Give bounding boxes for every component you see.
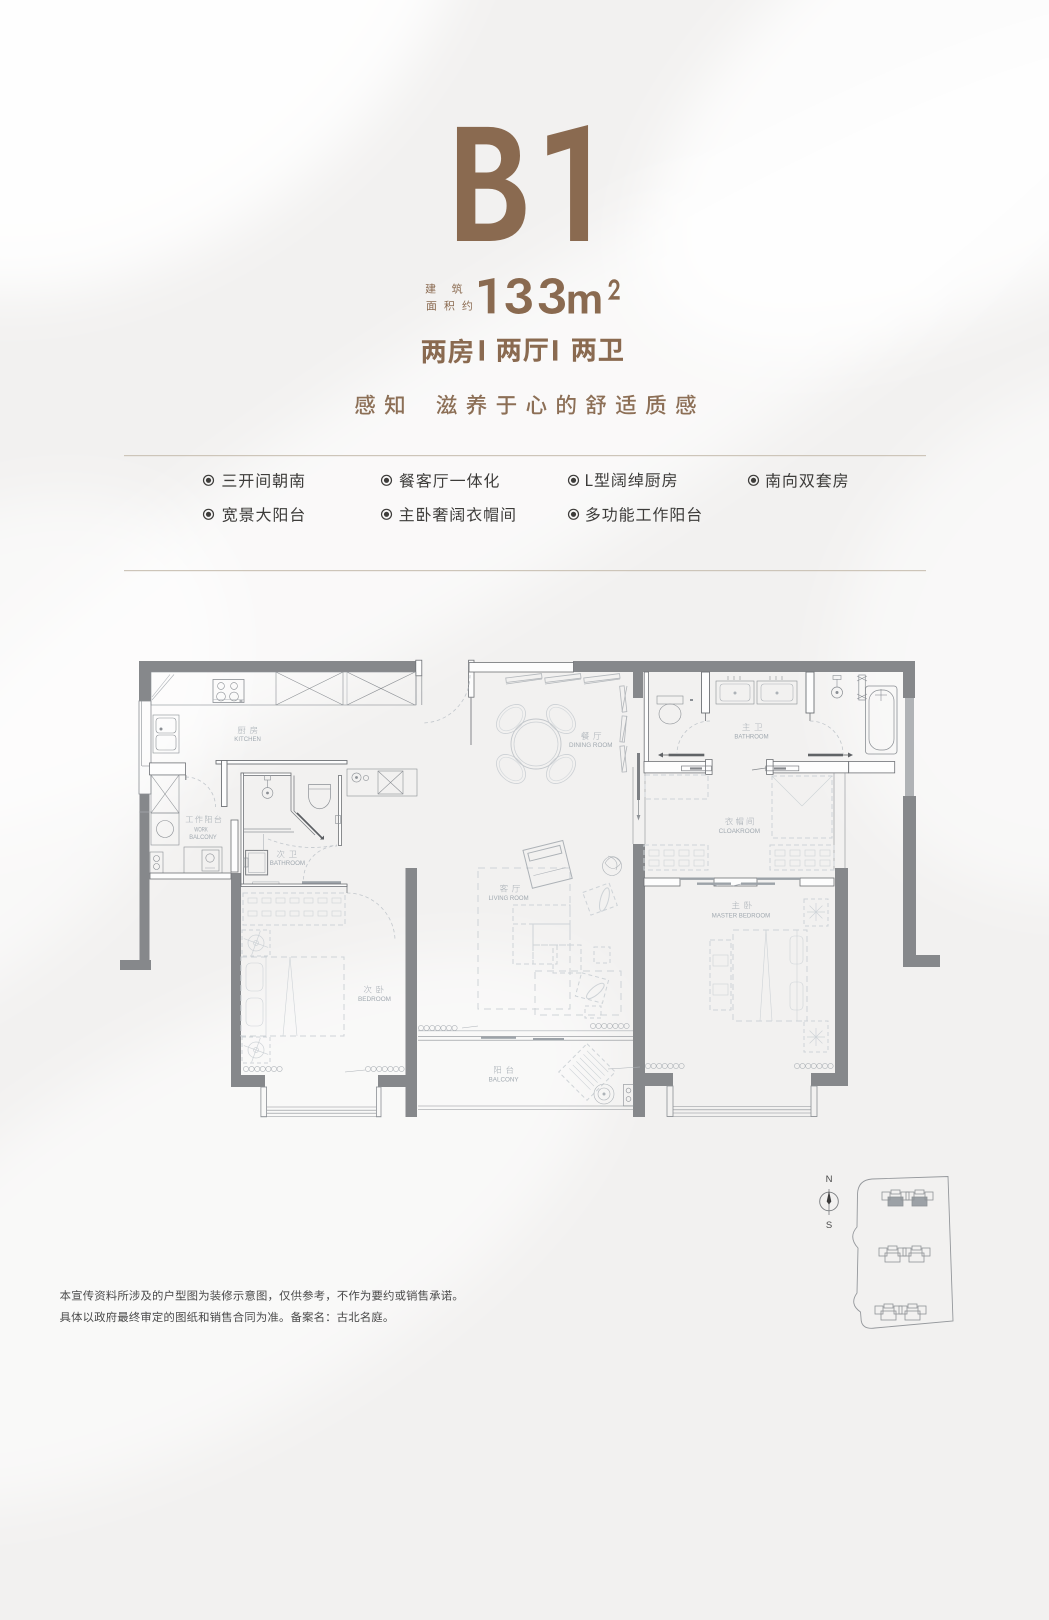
svg-text:BATHROOM: BATHROOM (734, 734, 768, 741)
svg-text:MASTER BEDROOM: MASTER BEDROOM (712, 913, 771, 920)
svg-text:BATHROOM: BATHROOM (270, 860, 306, 867)
svg-text:KITCHEN: KITCHEN (234, 736, 261, 743)
svg-text:DINING ROOM: DINING ROOM (569, 742, 613, 749)
svg-text:BEDROOM: BEDROOM (358, 996, 391, 1003)
svg-text:WORK: WORK (194, 827, 208, 834)
svg-text:LIVING ROOM: LIVING ROOM (489, 895, 529, 902)
svg-text:BALCONY: BALCONY (189, 834, 217, 841)
svg-text:S: S (826, 1220, 832, 1231)
svg-text:CLOAKROOM: CLOAKROOM (719, 828, 761, 835)
svg-text:N: N (826, 1174, 833, 1185)
svg-text:BALCONY: BALCONY (489, 1077, 519, 1084)
